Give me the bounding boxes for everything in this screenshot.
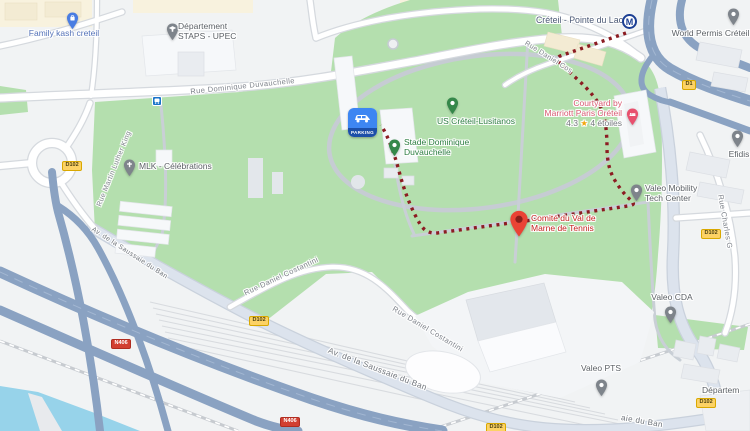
station-label-creteil-pointe-du-lac[interactable]: Créteil - Pointe du Lac [528, 15, 623, 25]
poi-label-mlk[interactable]: MLK - Célébrations [139, 162, 212, 172]
road-shield-n406-2: N406 [280, 417, 300, 427]
parking-icon[interactable]: PARKING [348, 108, 377, 137]
road-shield-d102-3: D102 [701, 229, 721, 239]
road-shield-n406-1: N406 [111, 339, 131, 349]
rating-reviews: 4 étoiles [590, 118, 622, 128]
mlk-pin-icon[interactable] [123, 159, 136, 177]
valeo-pts-pin-icon[interactable] [595, 379, 608, 397]
map-canvas[interactable]: D1 D102 D102 D102 D102 D102 N406 N406 Ru… [0, 0, 750, 431]
valeo-cda-pin-icon[interactable] [664, 306, 677, 324]
destination-pin-icon[interactable] [509, 210, 529, 238]
poi-label-valeo-cda[interactable]: Valeo CDA [644, 293, 700, 303]
road-shield-d102-4: D102 [696, 398, 716, 408]
stade-pin-icon[interactable] [388, 139, 401, 157]
efidis-pin-icon[interactable] [731, 130, 744, 148]
courtyard-pin-icon[interactable] [626, 108, 639, 126]
valeo-mobility-pin-icon[interactable] [630, 184, 643, 202]
us-creteil-pin-icon[interactable] [446, 97, 459, 115]
staps-pin-icon[interactable] [166, 23, 179, 41]
poi-label-tennis[interactable]: Comité du Val de Marne de Tennis [531, 214, 605, 234]
poi-label-staps[interactable]: Département STAPS - UPEC [178, 22, 240, 42]
road-shield-d102-1: D102 [62, 161, 82, 171]
road-shield-d102-2: D102 [249, 316, 269, 326]
poi-label-stade[interactable]: Stade Dominique Duvauchelle [404, 138, 470, 158]
poi-label-family-kash[interactable]: Family kash creteil [14, 29, 114, 39]
poi-label-courtyard[interactable]: Courtyard by Marriott Paris Créteil 4.3 … [530, 99, 622, 128]
poi-label-departement-partial: Départem [702, 386, 739, 396]
poi-label-valeo-mobility[interactable]: Valeo Mobility Tech Center [645, 184, 703, 204]
rating-value: 4.3 [566, 118, 578, 128]
poi-label-us-creteil[interactable]: US Créteil-Lusitanos [426, 117, 526, 127]
world-permis-pin-icon[interactable] [727, 8, 740, 26]
road-shield-d1: D1 [682, 80, 696, 90]
star-icon: ★ [580, 118, 588, 128]
metro-icon[interactable]: M [622, 14, 637, 29]
poi-label-valeo-pts[interactable]: Valeo PTS [576, 364, 626, 374]
courtyard-rating: 4.3 ★ 4 étoiles [530, 119, 622, 129]
poi-label-world-permis[interactable]: World Permis Créteil [668, 29, 750, 39]
bus-stop-icon[interactable] [152, 96, 162, 106]
poi-label-efidis[interactable]: Efidis [722, 150, 750, 160]
road-shield-d102-5: D102 [486, 423, 506, 431]
bus-glyph-icon [154, 98, 160, 104]
parking-label: PARKING [348, 128, 377, 137]
car-glyph-icon [348, 108, 377, 128]
